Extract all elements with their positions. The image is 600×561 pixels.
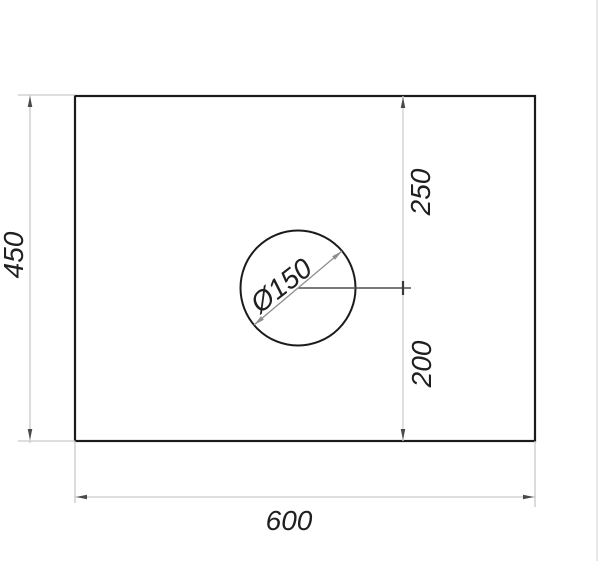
dim-200-arrowhead-bottom <box>401 429 406 440</box>
dim-offsets-250-200: 250 200 <box>401 96 437 441</box>
dim-450-arrowhead-bottom <box>28 429 33 440</box>
dim-600-arrowhead-right <box>523 495 534 500</box>
dim-450-arrowhead-top <box>28 96 33 107</box>
drawing-canvas: Ø150 450 600 250 200 <box>0 0 600 561</box>
dim-250-arrowhead-top <box>401 97 406 108</box>
dim-label-height: 450 <box>0 231 29 278</box>
dim-label-width: 600 <box>266 505 313 536</box>
dim-label-offset-top: 250 <box>405 168 436 216</box>
technical-drawing: Ø150 450 600 250 200 <box>0 0 600 561</box>
dim-width-600: 600 <box>75 441 535 536</box>
dim-label-diameter: Ø150 <box>244 252 318 319</box>
dim-600-arrowhead-left <box>76 495 87 500</box>
dim-height-450: 450 <box>0 95 75 443</box>
dim-label-offset-bottom: 200 <box>406 340 437 388</box>
